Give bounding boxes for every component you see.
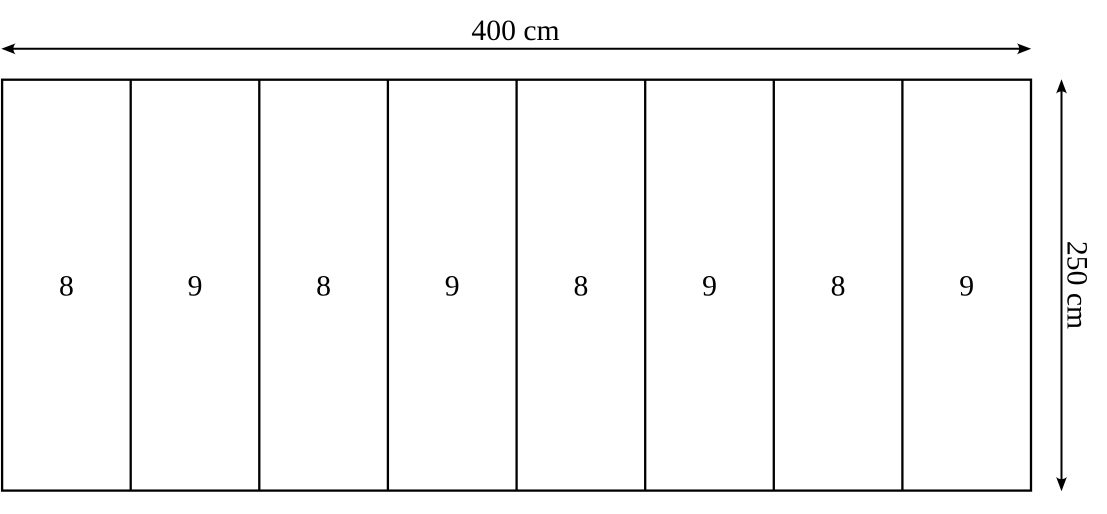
svg-text:8: 8	[831, 270, 846, 302]
svg-text:9: 9	[959, 270, 974, 302]
svg-text:250 cm: 250 cm	[1060, 241, 1092, 329]
svg-text:8: 8	[316, 270, 331, 302]
svg-text:400 cm: 400 cm	[471, 15, 559, 47]
svg-text:9: 9	[188, 270, 203, 302]
svg-text:8: 8	[573, 270, 588, 302]
svg-text:9: 9	[702, 270, 717, 302]
svg-text:9: 9	[445, 270, 460, 302]
svg-text:8: 8	[59, 270, 74, 302]
